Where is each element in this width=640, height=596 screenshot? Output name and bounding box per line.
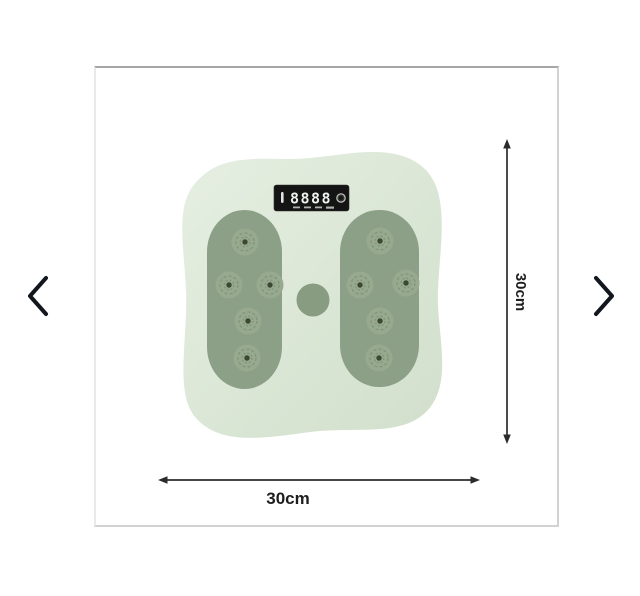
massage-node — [234, 345, 261, 372]
lcd-power-button — [337, 194, 345, 202]
height-label: 30cm — [512, 273, 529, 311]
massage-node — [232, 229, 259, 256]
massage-node — [366, 345, 393, 372]
chevron-right-icon — [590, 274, 618, 318]
product-diagram: 8888 — [96, 68, 557, 525]
massage-node — [367, 228, 394, 255]
massage-node — [216, 272, 243, 299]
lcd-indicator-bar — [281, 192, 284, 203]
product-image: 8888 — [94, 66, 559, 527]
width-label: 30cm — [266, 489, 309, 508]
massage-node — [393, 270, 420, 297]
width-dimension: 30cm — [158, 476, 480, 508]
massage-node — [367, 308, 394, 335]
massage-node — [235, 308, 262, 335]
chevron-left-icon — [24, 274, 52, 318]
next-image-button[interactable] — [582, 268, 626, 324]
lcd-value: 8888 — [290, 190, 332, 208]
height-dimension: 30cm — [503, 139, 529, 444]
lcd-display: 8888 — [274, 185, 349, 211]
twist-board-plate: 8888 — [182, 152, 442, 438]
prev-image-button[interactable] — [16, 268, 60, 324]
center-knob — [297, 284, 330, 317]
massage-node — [257, 272, 284, 299]
massage-node — [347, 272, 374, 299]
image-viewer-stage: 8888 — [0, 0, 640, 596]
